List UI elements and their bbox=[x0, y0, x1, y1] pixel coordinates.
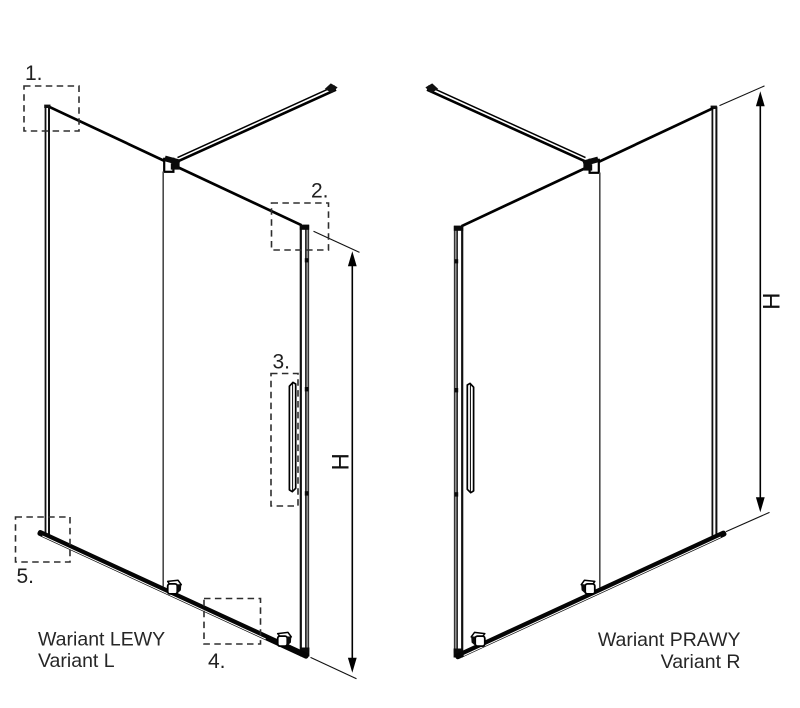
svg-text:H: H bbox=[328, 453, 355, 470]
svg-text:3.: 3. bbox=[273, 351, 291, 374]
svg-text:Wariant LEWY: Wariant LEWY bbox=[38, 629, 165, 651]
svg-text:Variant R: Variant R bbox=[661, 651, 741, 673]
svg-text:5.: 5. bbox=[17, 565, 35, 588]
svg-text:1.: 1. bbox=[25, 62, 43, 85]
svg-text:4.: 4. bbox=[208, 650, 226, 673]
svg-text:Variant L: Variant L bbox=[38, 650, 115, 672]
svg-text:Wariant PRAWY: Wariant PRAWY bbox=[598, 629, 741, 651]
svg-text:H: H bbox=[759, 293, 786, 310]
svg-text:2.: 2. bbox=[311, 180, 329, 203]
